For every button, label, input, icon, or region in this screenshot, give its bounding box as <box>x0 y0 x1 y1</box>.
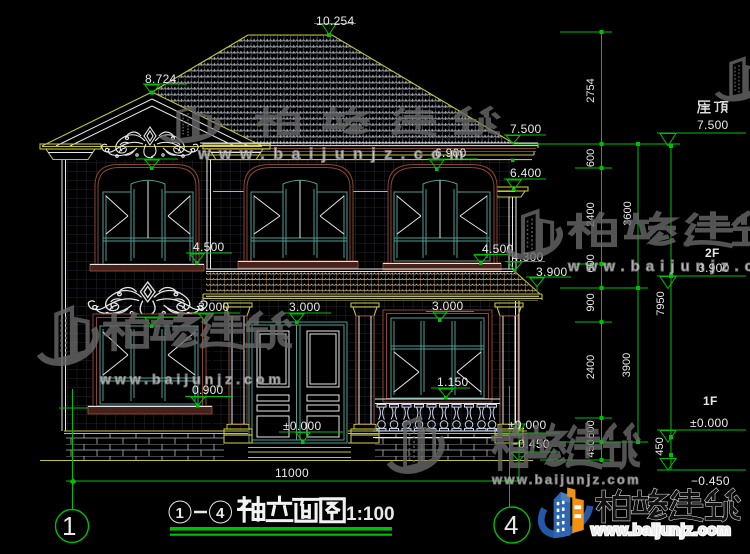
svg-text:7.500: 7.500 <box>697 118 729 132</box>
svg-text:1: 1 <box>176 505 184 522</box>
svg-text:3.000: 3.000 <box>432 299 464 313</box>
svg-text:1.150: 1.150 <box>437 375 469 389</box>
svg-text:1F: 1F <box>703 394 718 408</box>
svg-text:600: 600 <box>585 149 597 167</box>
svg-text:7.500: 7.500 <box>510 122 542 136</box>
svg-text:4: 4 <box>216 505 225 522</box>
svg-text:2400: 2400 <box>585 355 597 379</box>
svg-text:7950: 7950 <box>655 291 667 315</box>
svg-text:4.500: 4.500 <box>193 240 225 254</box>
svg-text:www.baijunjz.com: www.baijunjz.com <box>197 146 472 163</box>
svg-text:1: 1 <box>62 511 76 541</box>
svg-text:450: 450 <box>654 437 666 455</box>
svg-text:www.baijunjz.com: www.baijunjz.com <box>491 472 641 487</box>
svg-text:www.baijunjz.com: www.baijunjz.com <box>567 258 750 275</box>
svg-text:10.254: 10.254 <box>316 14 355 28</box>
svg-text:3.000: 3.000 <box>289 300 321 314</box>
svg-text:www.baijunjz.com: www.baijunjz.com <box>590 522 731 539</box>
svg-text:±0.000: ±0.000 <box>690 416 728 430</box>
svg-text:±0.000: ±0.000 <box>283 419 321 433</box>
svg-text:900: 900 <box>585 293 597 311</box>
svg-text:−0.450: −0.450 <box>691 474 730 488</box>
svg-text:2754: 2754 <box>585 78 597 102</box>
svg-text:11000: 11000 <box>275 466 309 480</box>
svg-text:3900: 3900 <box>621 353 633 377</box>
svg-text:1:100: 1:100 <box>346 504 395 525</box>
svg-text:3.900: 3.900 <box>536 265 568 279</box>
svg-text:4: 4 <box>504 510 518 540</box>
svg-text:6.400: 6.400 <box>510 166 542 180</box>
svg-text:www.baijunjz.com: www.baijunjz.com <box>99 371 285 387</box>
svg-text:8.724: 8.724 <box>145 72 177 86</box>
